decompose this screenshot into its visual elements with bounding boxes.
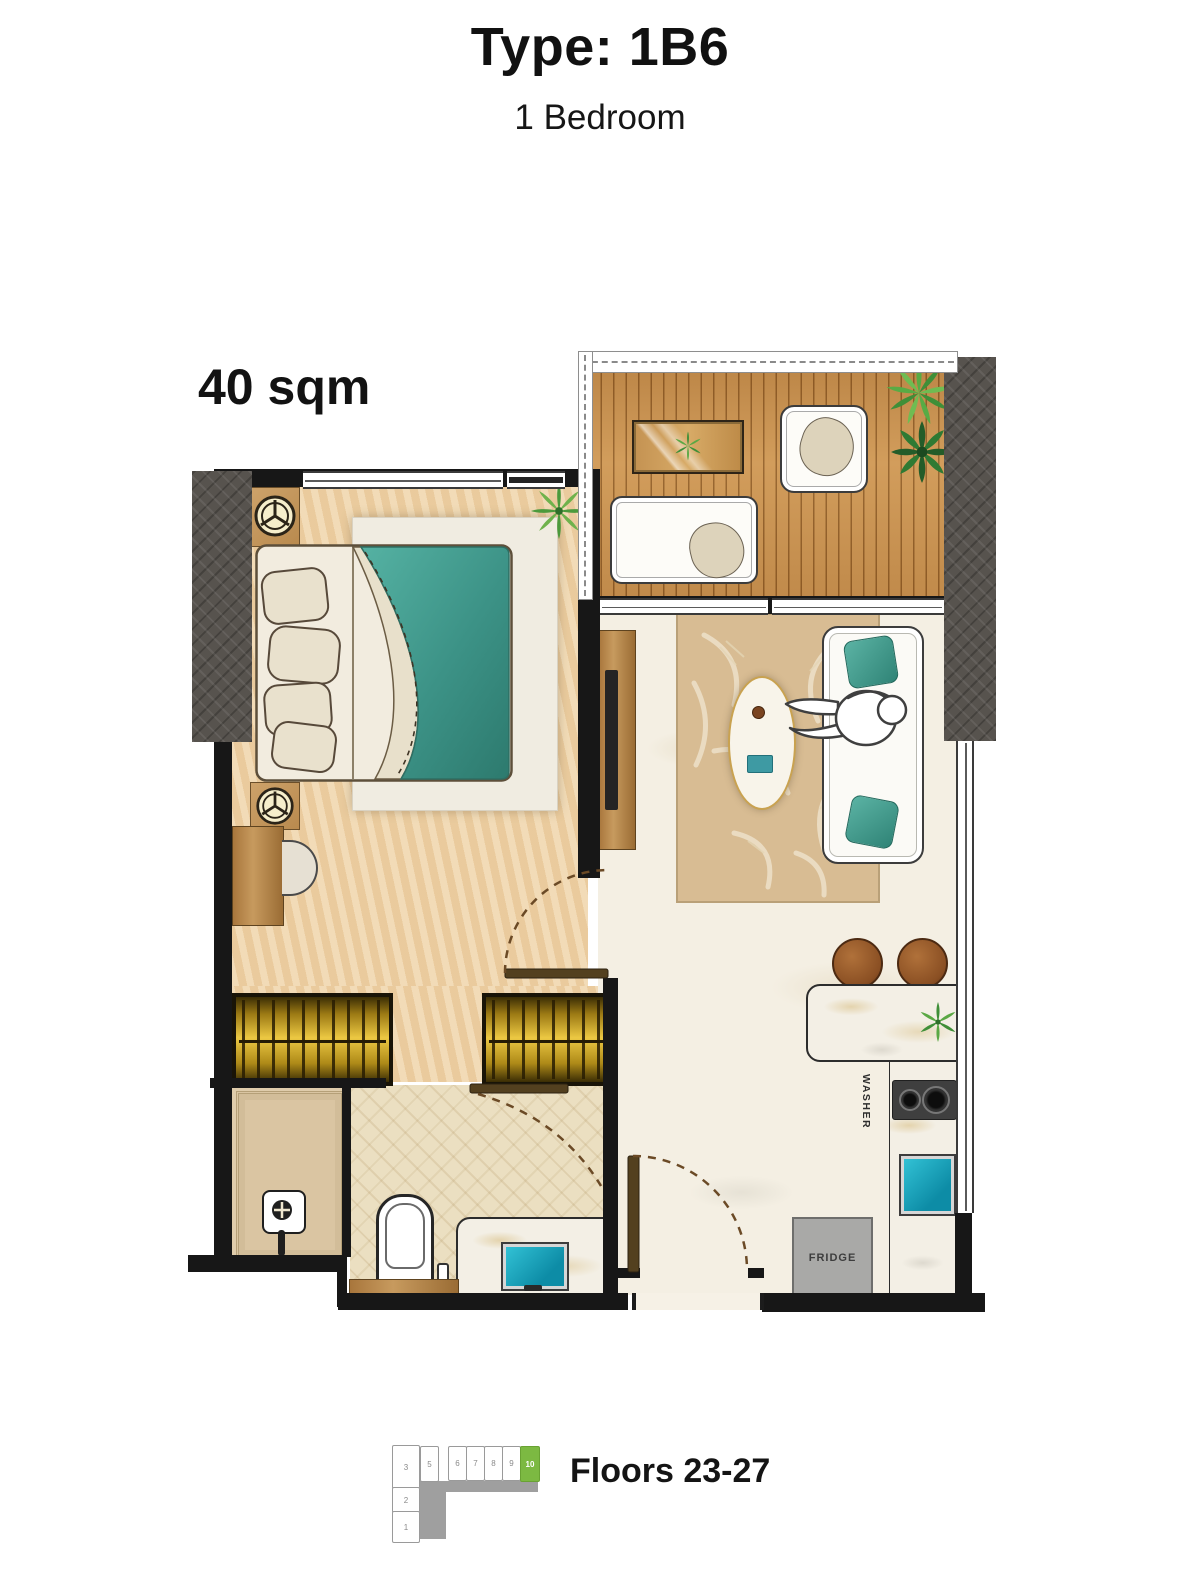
wardrobe-left — [232, 993, 393, 1086]
balcony-coffee-table — [632, 420, 744, 474]
keyplan-corridor-vertical — [420, 1481, 446, 1539]
vanity-sink — [501, 1242, 569, 1291]
page-title: Type: 1B6 — [0, 16, 1200, 78]
bar-stool-2 — [897, 938, 948, 989]
nightstand-bottom — [250, 782, 300, 830]
balcony-rail-left — [578, 351, 593, 600]
balcony-sliding-door-left — [600, 598, 768, 615]
washer-label: WASHER — [860, 1074, 872, 1138]
living-side-window — [956, 741, 974, 1213]
keyplan-unit-1: 1 — [392, 1511, 420, 1543]
shower-drain-icon — [265, 1193, 299, 1227]
wall-entry-jamb — [748, 1268, 764, 1278]
toilet — [376, 1194, 434, 1288]
vanity-faucet — [524, 1285, 542, 1291]
shower-head — [262, 1190, 306, 1234]
entry-door-opening — [632, 1293, 764, 1310]
stove-burner-small — [899, 1089, 921, 1111]
bedroom-window — [303, 471, 503, 489]
table-tray — [747, 755, 773, 773]
nightstand-top — [250, 487, 300, 547]
area-label: 40 sqm — [198, 358, 370, 416]
person-on-sofa — [778, 640, 928, 790]
shower-handle — [278, 1230, 285, 1256]
table-lamp-icon — [253, 494, 297, 538]
wall-bathroom-right — [603, 978, 618, 1310]
balcony-rail-top — [578, 351, 958, 373]
table-lamp-icon — [255, 786, 295, 826]
keyplan-unit-2: 2 — [392, 1487, 420, 1513]
table-plant-icon — [673, 431, 703, 461]
kitchen-counter-plant — [918, 1002, 958, 1042]
keyplan-unit-9: 9 — [502, 1446, 521, 1481]
floor-plan-page: Type: 1B6 1 Bedroom 40 sqm — [0, 0, 1200, 1587]
key-plan: 3 2 1 5 6 7 8 9 10 — [388, 1440, 548, 1550]
bar-stool-1 — [832, 938, 883, 989]
tv — [605, 670, 618, 810]
wall-right-lower — [955, 1213, 972, 1312]
keyplan-unit-7: 7 — [466, 1446, 485, 1481]
wardrobe-right — [482, 993, 613, 1086]
wall-bottom-bath — [338, 1293, 628, 1310]
wall-bathroom-top — [210, 1078, 386, 1088]
keyplan-unit-5: 5 — [420, 1446, 439, 1482]
stove-burner-large — [922, 1086, 950, 1114]
facade-right — [944, 357, 996, 741]
balcony-sliding-door-right — [772, 598, 944, 615]
wall-entry-inner — [608, 1268, 640, 1278]
page-subtitle: 1 Bedroom — [0, 98, 1200, 138]
sofa-pillow-bottom — [844, 794, 900, 850]
wall-bottom-kitchen — [762, 1293, 985, 1312]
floors-label: Floors 23-27 — [570, 1452, 770, 1491]
bed — [255, 544, 513, 782]
bedroom-desk — [232, 826, 284, 926]
facade-left — [192, 471, 252, 742]
coffee-cup — [752, 706, 765, 719]
fridge: FRIDGE — [792, 1217, 873, 1298]
fridge-label: FRIDGE — [809, 1252, 857, 1264]
wall-bottom-shower — [188, 1255, 345, 1272]
keyplan-unit-8: 8 — [484, 1446, 503, 1481]
wall-shower-divider — [342, 1085, 351, 1257]
keyplan-unit-6: 6 — [448, 1446, 467, 1481]
bedroom-window-2 — [507, 471, 565, 489]
kitchen-sink — [899, 1154, 956, 1216]
keyplan-unit-3: 3 — [392, 1445, 420, 1489]
keyplan-unit-10-highlighted: 10 — [520, 1446, 540, 1482]
